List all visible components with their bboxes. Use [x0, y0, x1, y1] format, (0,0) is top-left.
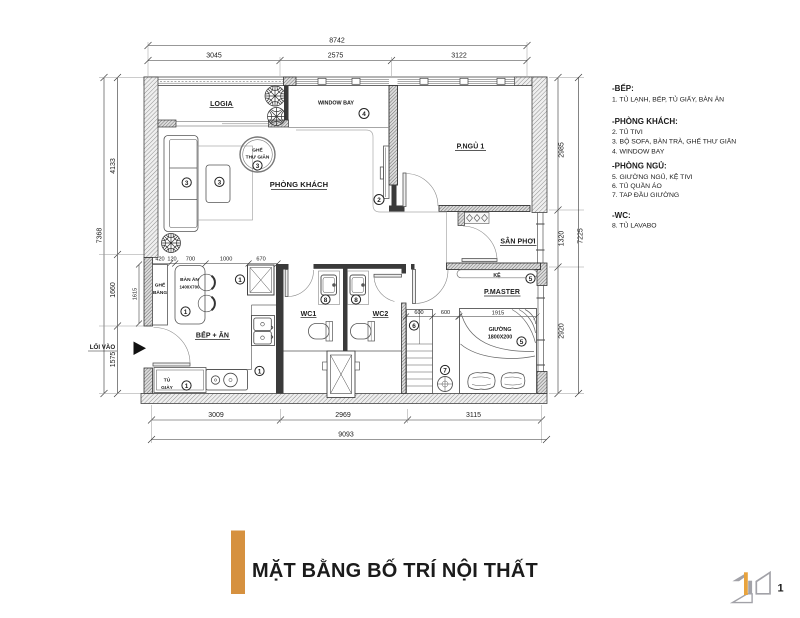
svg-text:120: 120: [167, 257, 176, 263]
svg-text:1660: 1660: [110, 282, 117, 298]
svg-text:3: 3: [185, 180, 189, 187]
svg-text:GIƯỜNG: GIƯỜNG: [489, 325, 512, 333]
svg-text:WINDOW BAY: WINDOW BAY: [318, 101, 354, 107]
svg-text:3: 3: [256, 163, 260, 170]
svg-text:MẶT BẰNG BỐ TRÍ NỘI THẤT: MẶT BẰNG BỐ TRÍ NỘI THẤT: [252, 558, 538, 582]
svg-text:7225: 7225: [578, 228, 585, 244]
svg-text:3: 3: [218, 179, 222, 186]
svg-text:1: 1: [185, 383, 189, 390]
svg-text:8: 8: [324, 297, 328, 304]
svg-text:670: 670: [256, 257, 265, 263]
svg-text:1: 1: [777, 583, 783, 595]
svg-text:TỦ: TỦ: [164, 377, 171, 384]
svg-text:THƯ GIÃN: THƯ GIÃN: [246, 154, 270, 161]
svg-text:3045: 3045: [206, 53, 222, 60]
svg-text:1320: 1320: [559, 231, 566, 247]
svg-text:5: 5: [520, 339, 524, 346]
svg-text:6: 6: [412, 323, 416, 330]
svg-text:LỐI VÀO: LỐI VÀO: [90, 344, 116, 351]
svg-text:1: 1: [238, 277, 242, 284]
svg-text:LOGIA: LOGIA: [210, 101, 233, 108]
svg-text:1800X200: 1800X200: [488, 335, 513, 341]
svg-text:2. TỦ TIVI: 2. TỦ TIVI: [612, 127, 643, 136]
svg-text:WC2: WC2: [373, 311, 389, 318]
svg-text:1400X700: 1400X700: [179, 285, 200, 290]
svg-text:3115: 3115: [466, 412, 481, 419]
svg-text:8. TỦ LAVABO: 8. TỦ LAVABO: [612, 221, 657, 230]
svg-text:SÂN PHƠI: SÂN PHƠI: [500, 237, 535, 246]
svg-text:3009: 3009: [208, 412, 224, 419]
svg-text:4. WINDOW BAY: 4. WINDOW BAY: [612, 149, 665, 156]
svg-text:-PHÒNG KHÁCH:: -PHÒNG KHÁCH:: [612, 117, 678, 126]
svg-text:5. GIƯỜNG NGỦ, KỆ TIVI: 5. GIƯỜNG NGỦ, KỆ TIVI: [612, 172, 693, 181]
svg-text:600: 600: [441, 310, 450, 316]
svg-text:600: 600: [414, 310, 423, 316]
svg-text:GHẾ: GHẾ: [252, 147, 263, 154]
svg-text:PHÒNG KHÁCH: PHÒNG KHÁCH: [270, 180, 328, 189]
svg-text:P.MASTER: P.MASTER: [484, 289, 520, 296]
svg-text:5: 5: [529, 276, 533, 283]
svg-text:1915: 1915: [492, 311, 504, 317]
svg-text:GHẾ: GHẾ: [155, 282, 166, 289]
svg-text:1: 1: [258, 369, 262, 376]
svg-text:700: 700: [186, 257, 195, 263]
svg-text:KỆ: KỆ: [493, 271, 501, 279]
svg-text:2: 2: [377, 197, 381, 204]
svg-text:GIÀY: GIÀY: [161, 384, 174, 391]
svg-text:7368: 7368: [97, 228, 104, 244]
svg-text:BĂNG: BĂNG: [153, 289, 167, 296]
svg-text:-PHÒNG NGỦ:: -PHÒNG NGỦ:: [612, 162, 667, 171]
svg-text:2575: 2575: [328, 53, 344, 60]
svg-text:8: 8: [354, 297, 358, 304]
svg-text:BÀN ĂN: BÀN ĂN: [180, 276, 199, 283]
svg-text:7: 7: [443, 368, 447, 375]
svg-text:4: 4: [362, 111, 366, 118]
svg-text:1615: 1615: [133, 288, 139, 300]
svg-text:-BẾP:: -BẾP:: [612, 83, 634, 93]
svg-text:P.NGỦ 1: P.NGỦ 1: [457, 142, 485, 151]
svg-text:4133: 4133: [110, 158, 117, 174]
svg-text:-WC:: -WC:: [612, 211, 631, 220]
svg-text:2969: 2969: [335, 412, 351, 419]
svg-text:1000: 1000: [220, 257, 232, 263]
svg-text:9093: 9093: [338, 432, 354, 439]
svg-text:2985: 2985: [559, 142, 566, 158]
svg-text:WC1: WC1: [301, 311, 317, 318]
svg-text:1575: 1575: [110, 352, 117, 368]
svg-text:3122: 3122: [451, 53, 467, 60]
svg-text:2920: 2920: [559, 323, 566, 339]
svg-text:8742: 8742: [329, 38, 345, 45]
svg-text:1: 1: [184, 309, 188, 316]
